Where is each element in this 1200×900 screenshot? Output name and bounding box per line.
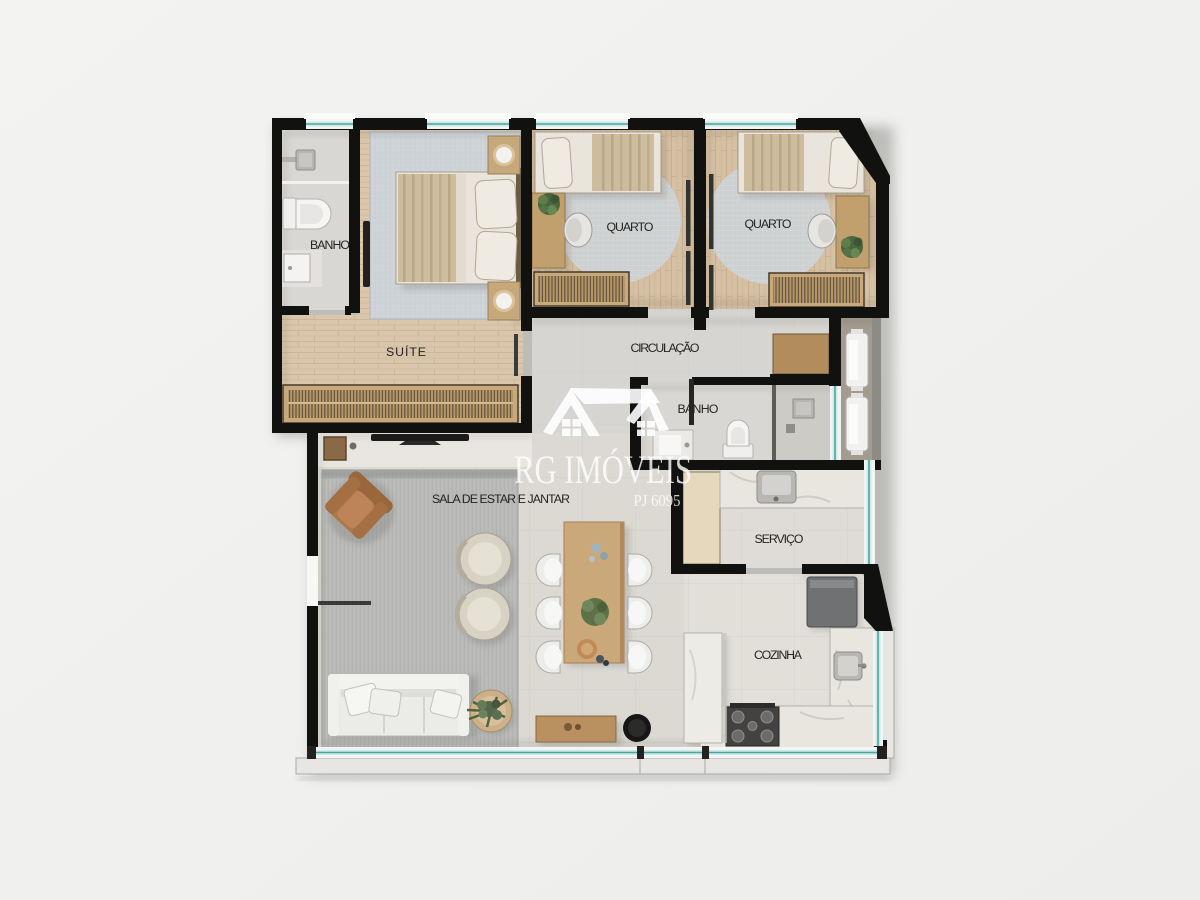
svg-text:BANHO: BANHO: [678, 402, 719, 416]
svg-text:SUÍTE: SUÍTE: [386, 344, 426, 359]
svg-text:BANHO: BANHO: [310, 238, 350, 252]
svg-text:CIRCULAÇÃO: CIRCULAÇÃO: [631, 341, 700, 355]
svg-text:COZINHA: COZINHA: [754, 648, 803, 662]
svg-text:SALA DE ESTAR E JANTAR: SALA DE ESTAR E JANTAR: [432, 492, 570, 506]
svg-text:SERVIÇO: SERVIÇO: [755, 532, 804, 546]
svg-text:QUARTO: QUARTO: [607, 220, 654, 234]
svg-text:QUARTO: QUARTO: [745, 217, 792, 231]
svg-text:RG IMÓVEIS: RG IMÓVEIS: [514, 447, 692, 492]
svg-text:PJ 6095: PJ 6095: [634, 491, 681, 510]
